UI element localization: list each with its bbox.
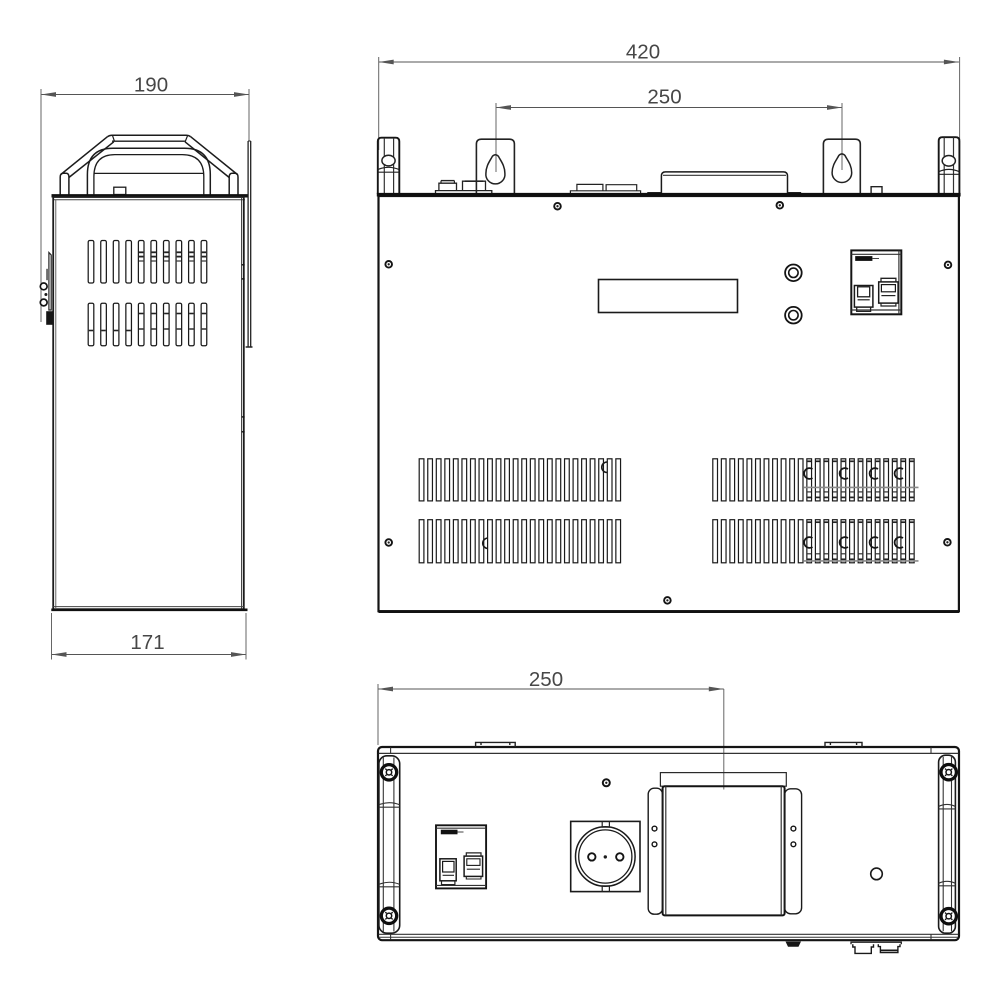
svg-text:250: 250: [647, 86, 681, 109]
svg-text:420: 420: [626, 41, 660, 64]
svg-text:171: 171: [130, 631, 164, 654]
svg-text:190: 190: [134, 74, 168, 97]
svg-text:250: 250: [529, 668, 563, 691]
